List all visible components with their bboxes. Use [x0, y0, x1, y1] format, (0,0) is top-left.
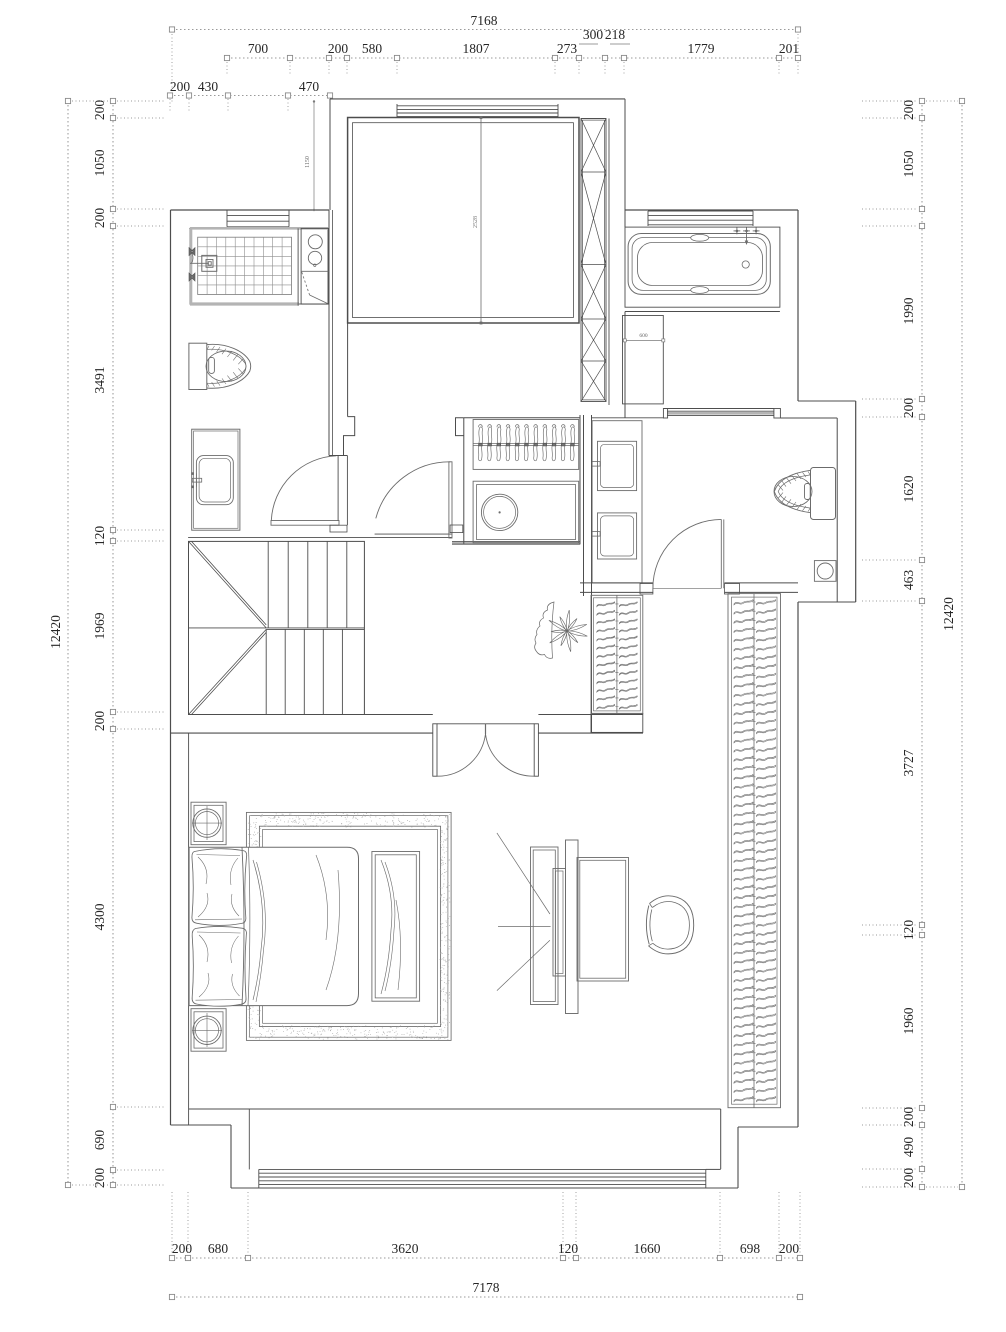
- svg-text:201: 201: [779, 41, 799, 56]
- svg-text:1807: 1807: [463, 41, 490, 56]
- svg-text:300: 300: [583, 27, 604, 42]
- svg-text:273: 273: [557, 41, 578, 56]
- svg-text:1960: 1960: [901, 1007, 916, 1034]
- svg-text:7168: 7168: [471, 13, 498, 28]
- svg-text:200: 200: [92, 1168, 107, 1189]
- svg-text:12420: 12420: [941, 597, 956, 631]
- svg-text:12420: 12420: [48, 615, 63, 649]
- svg-text:470: 470: [299, 79, 320, 94]
- svg-text:7178: 7178: [473, 1280, 500, 1295]
- svg-text:1150: 1150: [305, 156, 311, 168]
- svg-text:200: 200: [92, 100, 107, 121]
- svg-text:200: 200: [901, 1107, 916, 1128]
- svg-text:200: 200: [328, 41, 349, 56]
- svg-text:580: 580: [362, 41, 383, 56]
- svg-text:200: 200: [901, 398, 916, 419]
- svg-text:490: 490: [901, 1137, 916, 1158]
- svg-text:200: 200: [170, 79, 191, 94]
- svg-text:218: 218: [605, 27, 626, 42]
- svg-text:200: 200: [172, 1241, 193, 1256]
- svg-text:700: 700: [248, 41, 269, 56]
- svg-text:1050: 1050: [92, 149, 107, 176]
- svg-text:120: 120: [92, 526, 107, 547]
- svg-text:698: 698: [740, 1241, 761, 1256]
- svg-text:430: 430: [198, 79, 219, 94]
- svg-text:1779: 1779: [688, 41, 715, 56]
- svg-text:463: 463: [901, 570, 916, 591]
- svg-text:1990: 1990: [901, 297, 916, 324]
- svg-text:200: 200: [901, 1168, 916, 1189]
- svg-text:690: 690: [92, 1130, 107, 1151]
- svg-text:200: 200: [92, 711, 107, 732]
- svg-text:120: 120: [558, 1241, 579, 1256]
- svg-text:200: 200: [901, 100, 916, 121]
- svg-text:1660: 1660: [634, 1241, 661, 1256]
- svg-text:4300: 4300: [92, 903, 107, 930]
- svg-text:3620: 3620: [392, 1241, 419, 1256]
- svg-text:2528: 2528: [473, 216, 479, 228]
- svg-text:3491: 3491: [92, 367, 107, 394]
- svg-text:200: 200: [92, 208, 107, 229]
- svg-text:1620: 1620: [901, 475, 916, 502]
- svg-text:1969: 1969: [92, 612, 107, 639]
- svg-text:1050: 1050: [901, 150, 916, 177]
- svg-text:120: 120: [901, 920, 916, 941]
- svg-text:680: 680: [208, 1241, 229, 1256]
- svg-text:3727: 3727: [901, 749, 916, 776]
- svg-text:200: 200: [779, 1241, 800, 1256]
- svg-text:600: 600: [639, 333, 648, 339]
